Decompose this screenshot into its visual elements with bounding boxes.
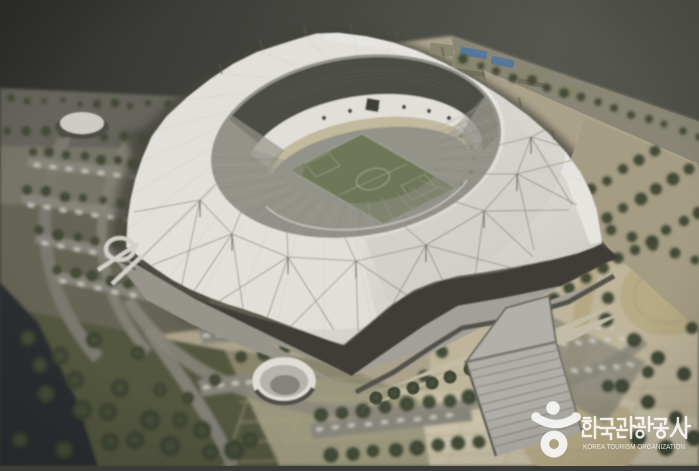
svg-text:KOREA TOURISM ORGANIZATION: KOREA TOURISM ORGANIZATION xyxy=(583,442,685,451)
